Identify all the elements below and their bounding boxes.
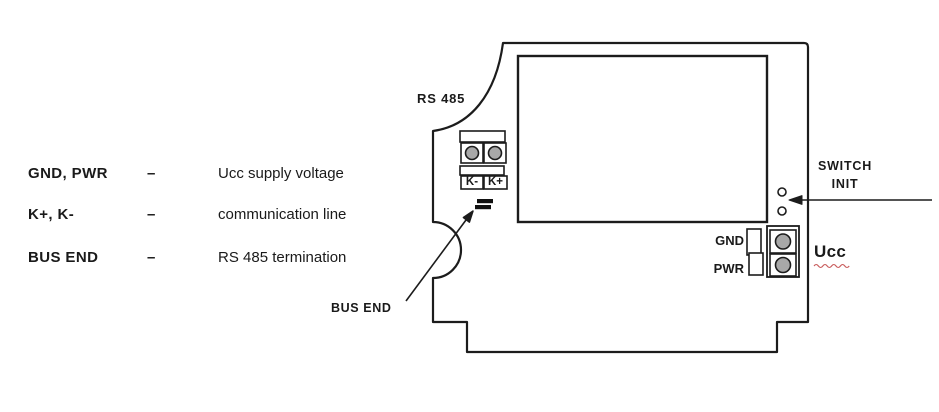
bus-end-label: BUS END xyxy=(331,301,391,315)
legend-dash: – xyxy=(147,206,155,223)
terminal-k-minus-label: K- xyxy=(461,176,483,189)
ucc-voltage-label: Ucc xyxy=(814,242,846,262)
terminal-screw-icon xyxy=(776,258,791,273)
rs485-connector-label: RS 485 xyxy=(417,91,465,106)
switch-init-label: SWITCH INIT xyxy=(805,157,885,193)
gnd-terminal-label: GND xyxy=(704,233,744,248)
terminal-k-plus-label: K+ xyxy=(484,176,507,189)
legend-term: BUS END xyxy=(28,249,98,266)
legend-row: K+, K- – communication line xyxy=(0,206,420,224)
legend-description: Ucc supply voltage xyxy=(218,165,344,182)
terminal-screw-icon xyxy=(489,147,502,160)
ucc-spellcheck-underline xyxy=(814,265,849,268)
legend-row: BUS END – RS 485 termination xyxy=(0,249,420,267)
legend-description: communication line xyxy=(218,206,346,223)
legend-dash: – xyxy=(147,165,155,182)
switch-init-label-line2: INIT xyxy=(805,175,885,193)
legend-dash: – xyxy=(147,249,155,266)
switch-init-label-line1: SWITCH xyxy=(805,157,885,175)
terminal-screw-icon xyxy=(466,147,479,160)
switch-init-arrow xyxy=(789,196,932,205)
figure-canvas: GND, PWR – Ucc supply voltage K+, K- – c… xyxy=(0,0,939,412)
terminal-screw-icon xyxy=(776,234,791,249)
legend-description: RS 485 termination xyxy=(218,249,346,266)
legend-row: GND, PWR – Ucc supply voltage xyxy=(0,165,420,183)
pwr-terminal-label: PWR xyxy=(704,261,744,276)
device-cover-area xyxy=(518,56,767,222)
power-terminal-block xyxy=(747,226,799,277)
legend-term: K+, K- xyxy=(28,206,74,223)
legend-term: GND, PWR xyxy=(28,165,108,182)
